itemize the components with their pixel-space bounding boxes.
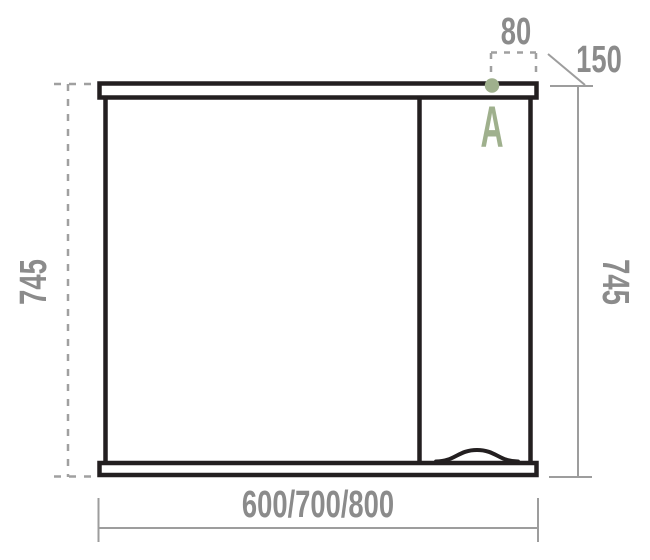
dim-offset-top: 80 — [491, 11, 536, 79]
label-offset-top: 80 — [501, 11, 531, 53]
label-width-options: 600/700/800 — [242, 484, 394, 526]
label-height-left: 745 — [13, 259, 55, 305]
bottom-shelf — [100, 463, 537, 475]
drawing-canvas: 745 745 150 80 600/700/800 A — [0, 0, 650, 560]
door-wave-detail — [436, 450, 518, 462]
dimension-drawing: 745 745 150 80 600/700/800 A — [0, 0, 650, 560]
dim-height-right: 745 150 — [548, 39, 636, 477]
cabinet-outline — [100, 84, 537, 476]
label-point-a: A — [480, 95, 503, 159]
dim-width-bottom: 600/700/800 — [99, 484, 539, 542]
label-height-right: 745 — [594, 259, 636, 305]
dim-height-left: 745 — [13, 84, 96, 477]
point-a-dot-icon — [485, 78, 499, 92]
label-depth: 150 — [576, 39, 622, 81]
top-shelf — [100, 84, 537, 98]
